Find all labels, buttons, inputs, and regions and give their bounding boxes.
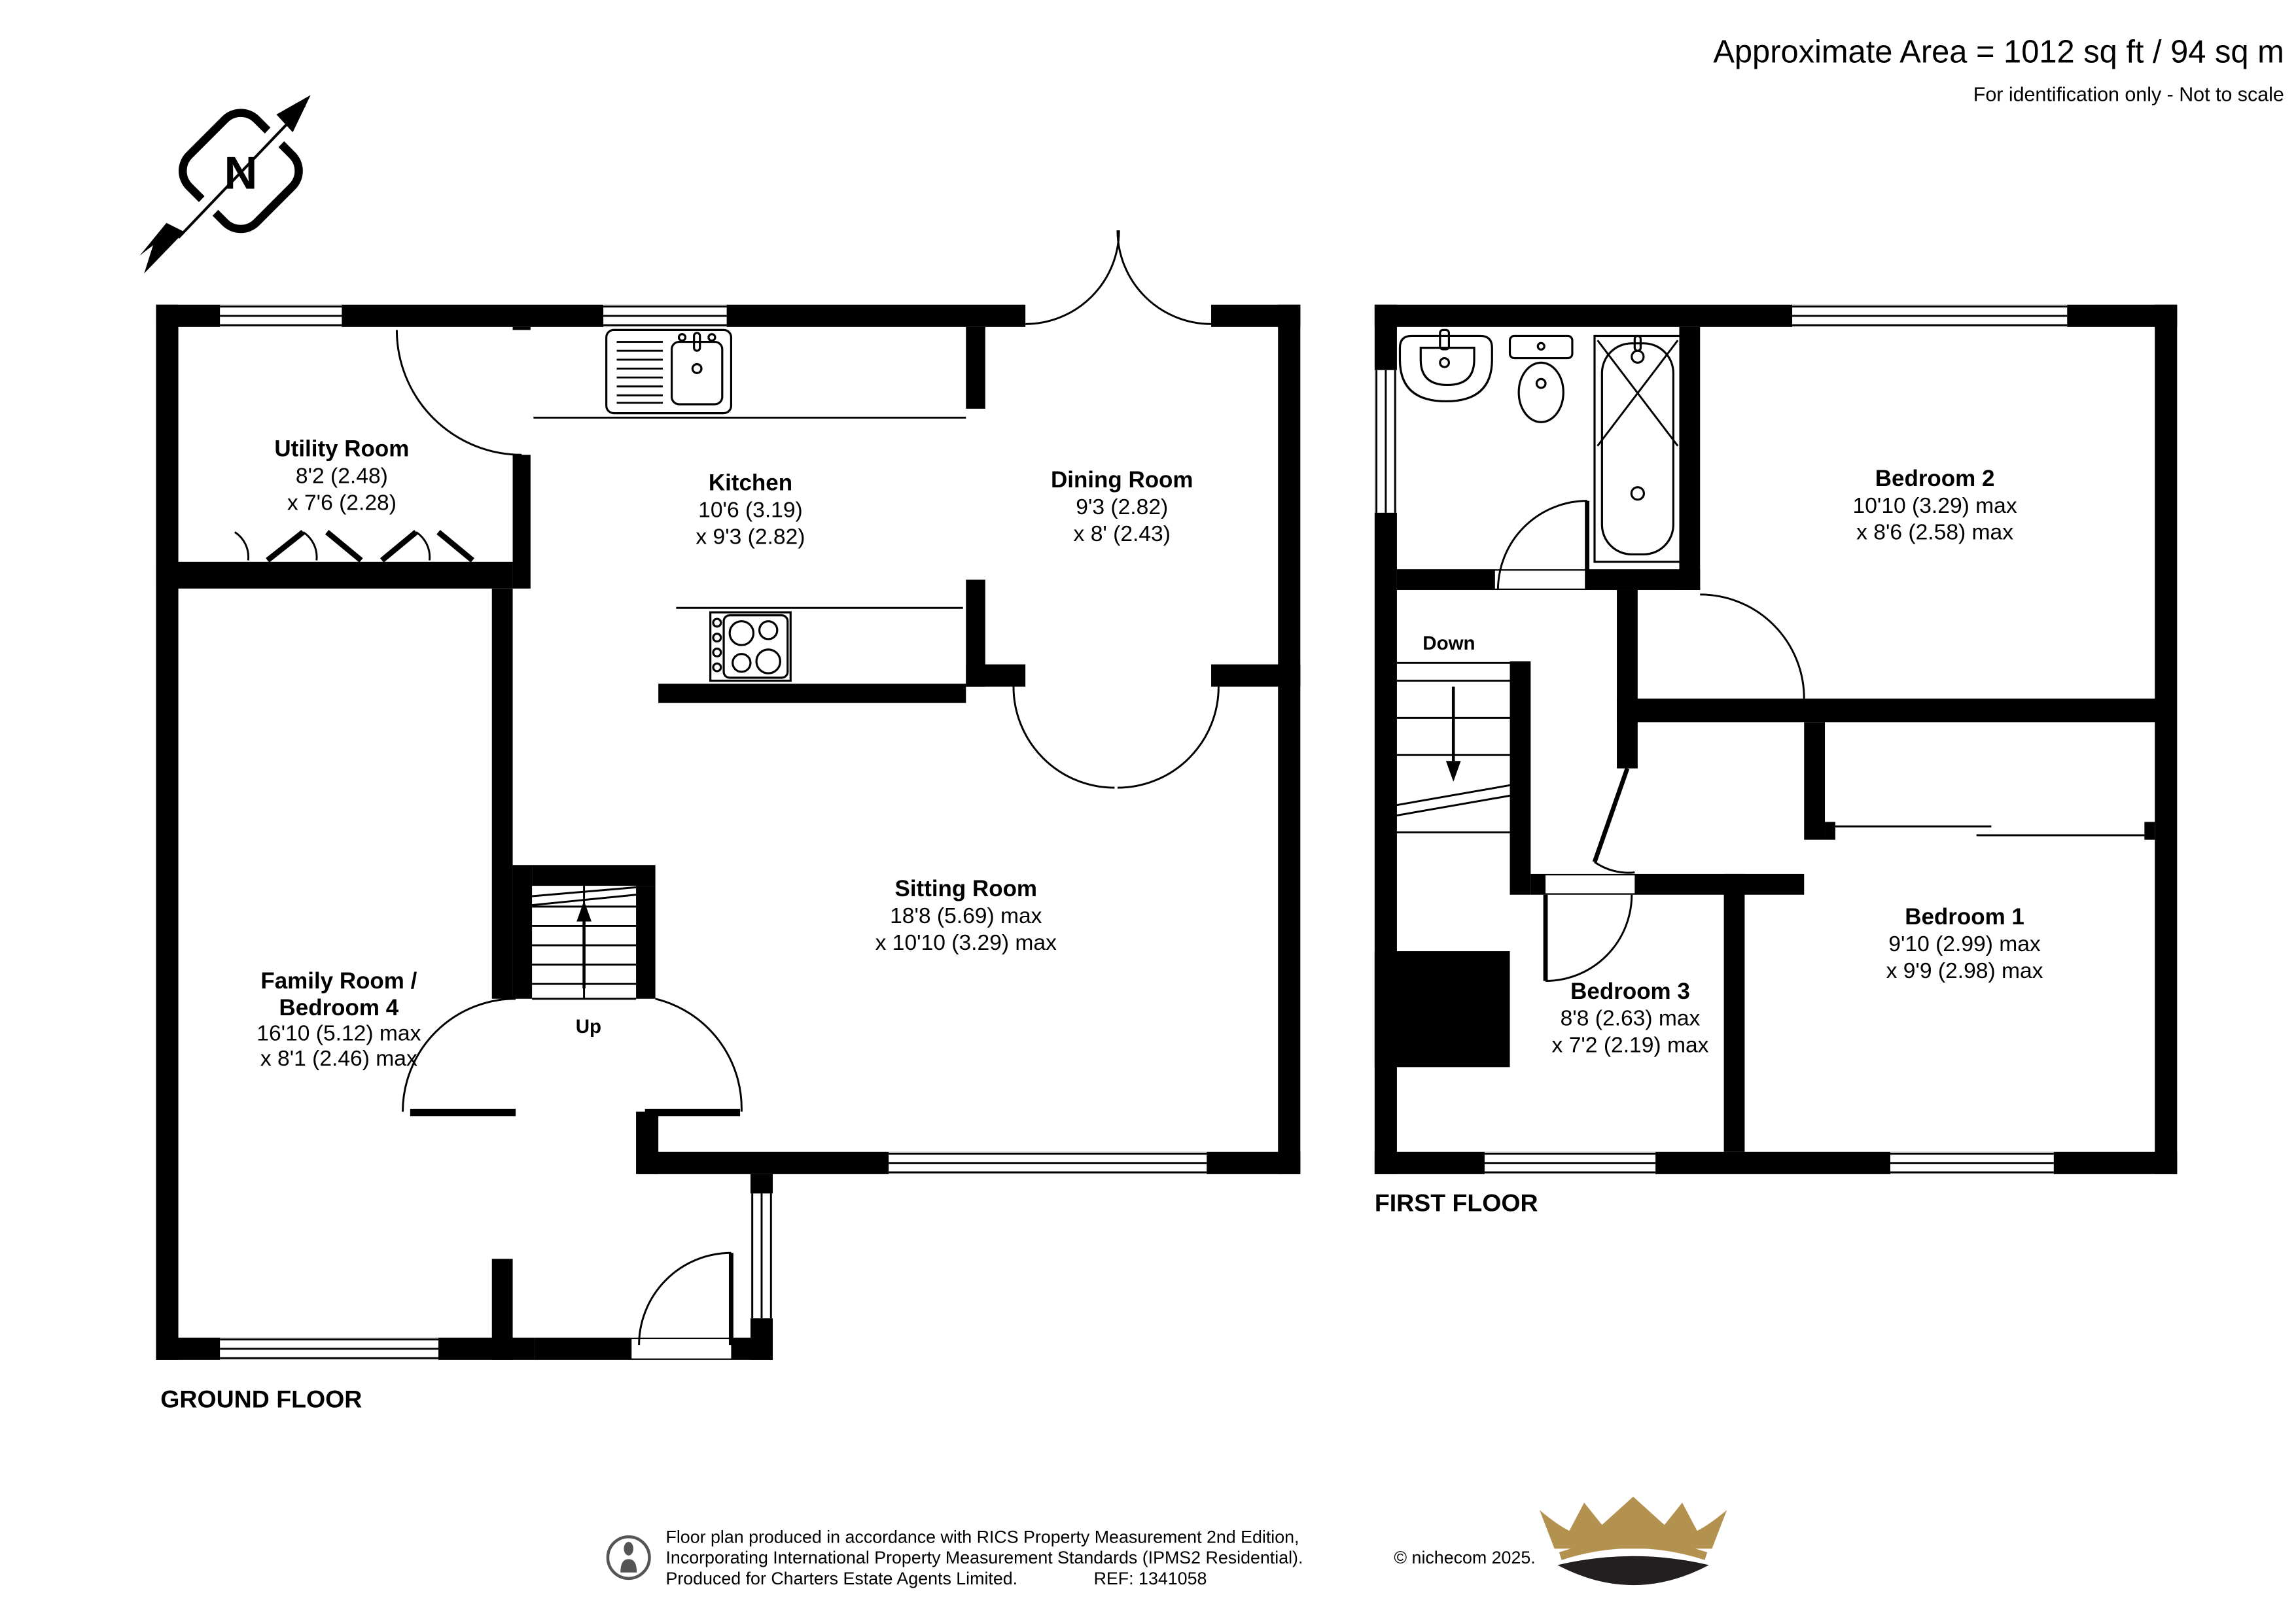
room-dim: 9'3 (2.82) (1076, 495, 1168, 519)
room-label-bedroom1: Bedroom 1 9'10 (2.99) max x 9'9 (2.98) m… (1886, 904, 2043, 983)
hall-side-window (751, 1193, 773, 1318)
room-dim: 8'2 (2.48) (296, 464, 388, 488)
wardrobe-sliding-doors (1835, 826, 2144, 835)
room-name: Sitting Room (895, 876, 1038, 901)
up-arrow-icon (576, 901, 592, 922)
first-floor-plan: Down Bedroom 2 10'10 (3.29) max x 8'6 (2… (1375, 305, 2177, 1217)
bedroom2-door-arc (1700, 595, 1804, 699)
landing-cupboard-door (1595, 769, 1634, 873)
floorplan-page: Up Utility Room 8'2 (2.48) x 7'6 (2.28) … (0, 0, 2296, 1623)
footer: Floor plan produced in accordance with R… (608, 1527, 1536, 1588)
up-label: Up (576, 1016, 601, 1038)
room-label-bedroom2: Bedroom 2 10'10 (3.29) max x 8'6 (2.58) … (1853, 466, 2017, 545)
bedroom3-door (1545, 895, 1632, 981)
room-name: Bedroom 4 (279, 995, 399, 1021)
scale-note: For identification only - Not to scale (1973, 83, 2284, 105)
footer-copyright: © nichecom 2025. (1394, 1548, 1535, 1567)
room-dim: 9'10 (2.99) max (1888, 932, 2041, 956)
room-dim: x 8' (2.43) (1074, 522, 1171, 546)
footer-line3: Produced for Charters Estate Agents Limi… (665, 1569, 1017, 1588)
room-name: Family Room / (260, 968, 417, 994)
room-dim: 10'6 (3.19) (698, 498, 803, 523)
header: Approximate Area = 1012 sq ft / 94 sq m … (1713, 34, 2284, 105)
utility-window (220, 305, 342, 327)
room-dim: x 8'6 (2.58) max (1856, 521, 2013, 545)
dining-french-doors (1025, 230, 1211, 324)
room-dim: x 7'6 (2.28) (287, 491, 397, 515)
room-label-utility: Utility Room 8'2 (2.48) x 7'6 (2.28) (274, 436, 409, 515)
crown-base (1557, 1556, 1709, 1585)
front-door-opening (631, 1339, 731, 1359)
kitchen-window (603, 305, 727, 327)
room-dim: 16'10 (5.12) max (256, 1021, 421, 1045)
room-name: Dining Room (1051, 467, 1193, 493)
room-dim: 18'8 (5.69) max (890, 904, 1042, 928)
room-dim: x 10'10 (3.29) max (875, 931, 1057, 955)
room-label-bedroom3: Bedroom 3 8'8 (2.63) max x 7'2 (2.19) ma… (1552, 979, 1709, 1058)
bedroom2-window (1792, 305, 2067, 327)
bathroom-sink-icon (1400, 330, 1492, 401)
dining-sitting-double-doors (1014, 687, 1218, 788)
sitting-room-window (889, 1152, 1207, 1174)
ground-stairs (532, 886, 636, 999)
room-dim: x 7'2 (2.19) max (1552, 1034, 1709, 1058)
footer-line1: Floor plan produced in accordance with R… (665, 1527, 1299, 1546)
kitchen-hob-icon (711, 612, 791, 681)
bathtub-icon (1595, 336, 1681, 561)
charters-crown-logo (1540, 1497, 1727, 1585)
room-dim: x 8'1 (2.46) max (260, 1047, 417, 1071)
north-compass-icon: N (139, 95, 315, 273)
hall-entrance-door-arcs (402, 999, 741, 1112)
room-label-sitting: Sitting Room 18'8 (5.69) max x 10'10 (3.… (875, 876, 1057, 955)
compass-n: N (224, 147, 258, 199)
room-dim: x 9'9 (2.98) max (1886, 959, 2043, 983)
room-label-kitchen: Kitchen 10'6 (3.19) x 9'3 (2.82) (696, 470, 805, 550)
room-name: Utility Room (274, 436, 409, 461)
bifold-doors (235, 532, 472, 560)
footer-line2: Incorporating International Property Mea… (665, 1548, 1303, 1567)
person-badge-icon (608, 1537, 650, 1579)
first-stairs (1394, 663, 1513, 832)
bedroom3-window (1485, 1152, 1655, 1174)
ground-floor-plan: Up Utility Room 8'2 (2.48) x 7'6 (2.28) … (156, 230, 1300, 1412)
bathroom-window (1375, 370, 1397, 513)
family-room-window (220, 1338, 438, 1360)
front-door (639, 1253, 732, 1345)
bedroom1-window (1890, 1152, 2054, 1174)
room-dim: x 9'3 (2.82) (696, 525, 805, 550)
footer-ref: REF: 1341058 (1094, 1569, 1207, 1588)
room-dim: 8'8 (2.63) max (1561, 1007, 1701, 1031)
crown-band (1561, 1544, 1706, 1556)
room-name: Kitchen (709, 470, 792, 496)
bedroom3-door-opening (1545, 875, 1634, 893)
bathroom-door-opening (1495, 570, 1587, 588)
first-walls (1375, 305, 2177, 1174)
room-name: Bedroom 1 (1905, 904, 2024, 930)
room-dim: 10'10 (3.29) max (1853, 494, 2017, 518)
room-name: Bedroom 2 (1875, 466, 1995, 491)
approximate-area: Approximate Area = 1012 sq ft / 94 sq m (1713, 34, 2284, 69)
room-name: Bedroom 3 (1570, 979, 1690, 1004)
toilet-icon (1510, 336, 1572, 422)
down-arrow-icon (1446, 761, 1461, 782)
room-label-dining: Dining Room 9'3 (2.82) x 8' (2.43) (1051, 467, 1193, 546)
first-floor-title: FIRST FLOOR (1375, 1189, 1538, 1217)
kitchen-sink-icon (607, 330, 732, 413)
ground-floor-title: GROUND FLOOR (160, 1386, 362, 1413)
room-label-family: Family Room / Bedroom 4 16'10 (5.12) max… (256, 968, 421, 1071)
utility-door-arc (397, 330, 521, 455)
utility-door-opening (511, 330, 532, 455)
ground-walls (156, 305, 1300, 1360)
floorplan-canvas: Up Utility Room 8'2 (2.48) x 7'6 (2.28) … (0, 0, 2296, 1623)
down-label: Down (1422, 633, 1475, 654)
